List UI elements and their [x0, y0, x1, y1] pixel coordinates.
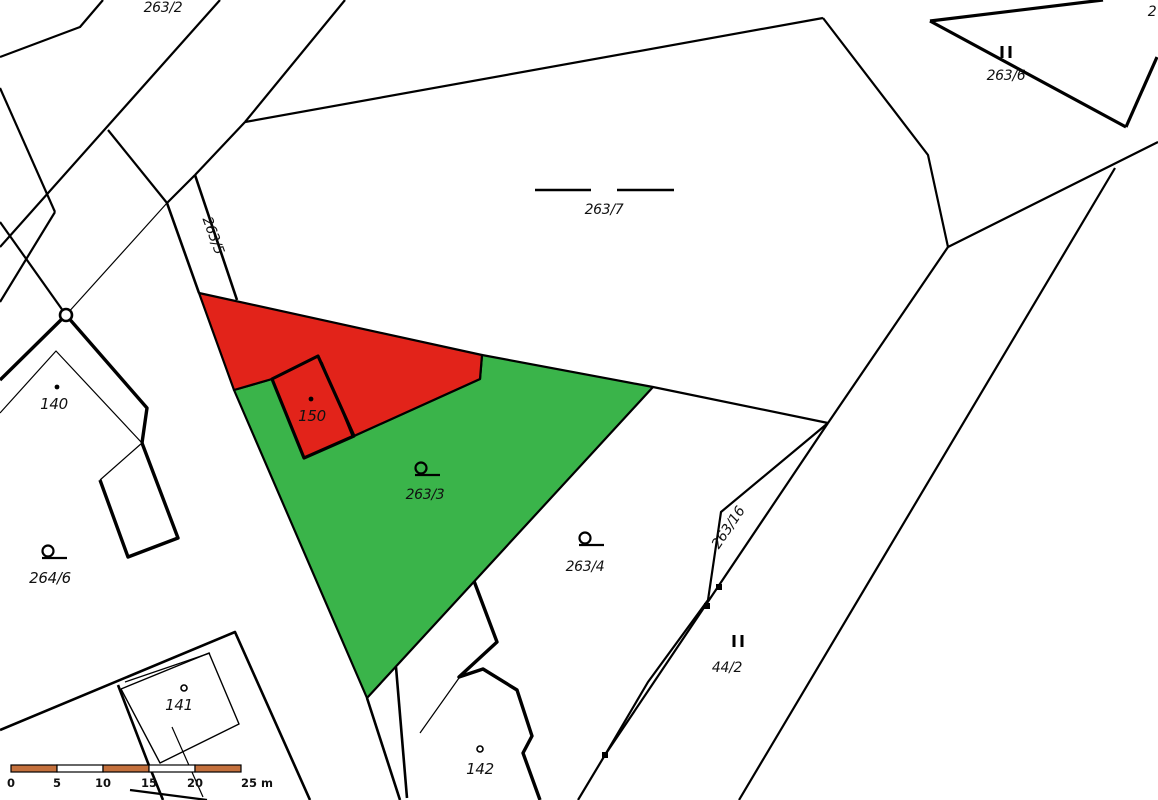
scale-bar-segment — [195, 765, 241, 772]
boundary-line — [0, 222, 66, 315]
survey-line-thin — [66, 203, 167, 315]
survey-point-marker — [602, 752, 608, 758]
cadastral-map-view: 263/2263/5263/7263/62150263/3263/4263/16… — [0, 0, 1158, 800]
parcel-label-263-3: 263/3 — [406, 487, 445, 503]
building-label-150: 150 — [298, 407, 326, 425]
scale-bar-label: 5 — [53, 776, 61, 790]
parcel-label-263-7: 263/7 — [585, 202, 624, 218]
boundary-line — [578, 755, 605, 800]
parcel-label-263-5: 263/5 — [199, 215, 227, 257]
building-140-outer-wall — [0, 315, 147, 443]
boundary-line-long-right — [739, 168, 1115, 800]
building-point-dot — [55, 385, 60, 390]
building-140-inner-wall — [0, 351, 142, 443]
parcel-label-263-16: 263/16 — [709, 503, 749, 552]
scale-bar-segment — [103, 765, 149, 772]
road-263-5-left-edge — [167, 203, 199, 293]
parcel-label-44-2: 44/2 — [712, 660, 743, 676]
boundary-line — [245, 0, 345, 122]
parcel-label-264-6: 264/6 — [29, 569, 71, 587]
scale-bar-label: 20 — [187, 776, 203, 790]
building-label-142: 142 — [466, 760, 494, 778]
boundary-line — [828, 247, 948, 423]
garden-symbol-263-4 — [580, 533, 591, 544]
scale-bar-label: 15 — [141, 776, 157, 790]
building-label-140: 140 — [40, 395, 68, 413]
cadastral-map: 263/2263/5263/7263/62150263/3263/4263/16… — [0, 0, 1158, 800]
survey-point-marker — [704, 603, 710, 609]
parcel-line-thin — [420, 678, 459, 733]
building-topright-wall — [1126, 57, 1157, 127]
boundary-line — [0, 0, 220, 247]
parcel-label-partial-2: 2 — [1148, 4, 1157, 20]
scale-bar-segment — [149, 765, 195, 772]
building-label-141: 141 — [165, 696, 193, 714]
scale-bar-segment — [57, 765, 103, 772]
survey-point-marker — [716, 584, 722, 590]
building-topright-wall — [930, 0, 1103, 21]
boundary-line — [130, 790, 207, 800]
boundary-line — [167, 175, 195, 203]
building-topright-wall — [930, 21, 1126, 127]
road-edge — [0, 632, 310, 800]
building-140-inner-line — [100, 443, 142, 480]
parcel-label-263-6: 263/6 — [987, 68, 1026, 84]
building-point-ring — [181, 685, 187, 691]
building-140-lower-wall — [100, 443, 178, 557]
scale-bar-label: 25 m — [241, 776, 273, 790]
boundary-line — [0, 88, 55, 212]
scale-bar-segment — [11, 765, 57, 772]
boundary-circle-marker — [60, 309, 72, 321]
boundary-line — [108, 130, 167, 203]
garden-symbol-264-6 — [43, 546, 54, 557]
building-point-dot — [309, 397, 314, 402]
boundary-line — [0, 0, 103, 57]
road-edge — [367, 698, 400, 800]
boundary-line — [653, 387, 828, 423]
scale-bar-label: 10 — [95, 776, 111, 790]
parcel-263-7-top-boundary — [245, 18, 823, 122]
boundary-line — [195, 122, 245, 175]
building-point-ring — [477, 746, 483, 752]
boundary-line — [948, 142, 1158, 247]
scale-bar-label: 0 — [7, 776, 15, 790]
road-edge — [396, 667, 407, 798]
parcel-label-263-2: 263/2 — [144, 0, 183, 16]
parcel-263-7-right-boundary — [823, 18, 948, 247]
parcel-label-263-4: 263/4 — [566, 559, 605, 575]
